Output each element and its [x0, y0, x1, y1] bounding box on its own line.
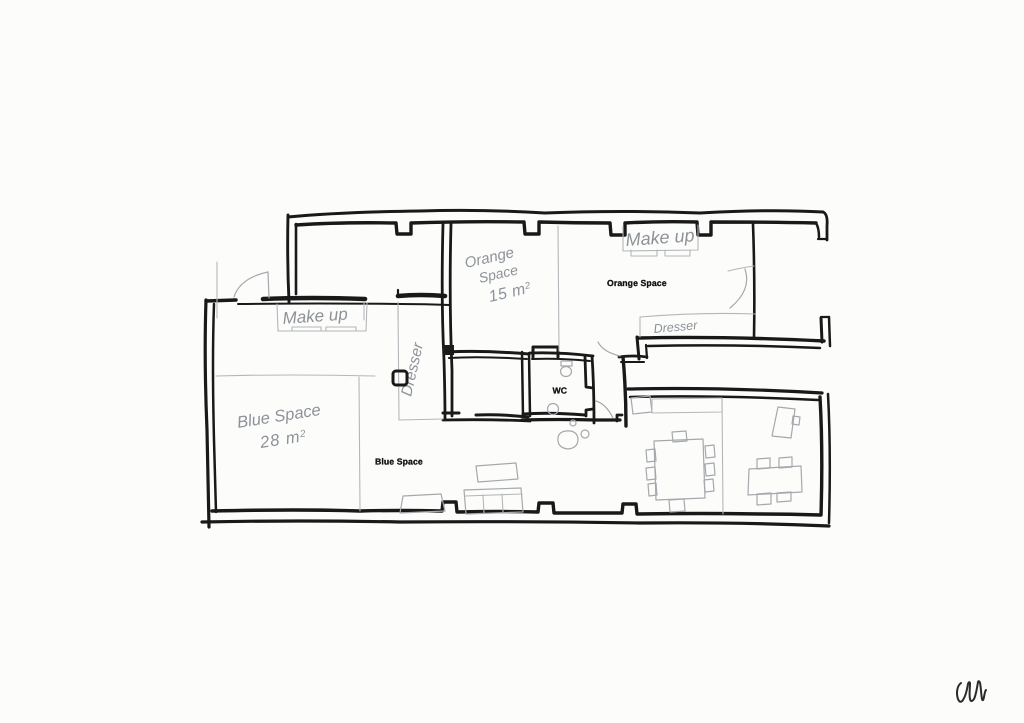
svg-text:Blue Space: Blue Space — [375, 456, 423, 466]
svg-text:WC: WC — [553, 386, 568, 396]
svg-text:Orange Space: Orange Space — [607, 278, 667, 288]
